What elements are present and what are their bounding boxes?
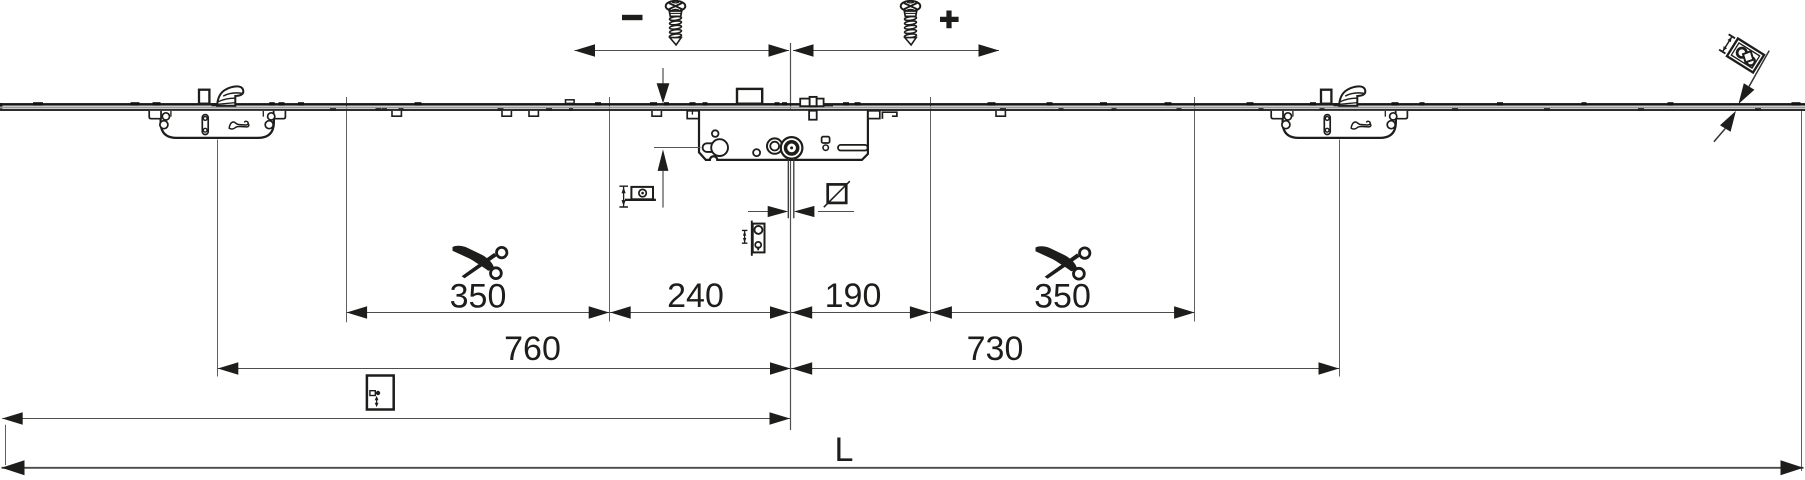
svg-text:L: L [835, 431, 854, 469]
svg-text:760: 760 [504, 330, 561, 368]
svg-text:350: 350 [1034, 278, 1091, 316]
svg-text:730: 730 [967, 330, 1024, 368]
svg-text:190: 190 [825, 277, 882, 315]
svg-text:350: 350 [450, 278, 507, 316]
svg-text:240: 240 [667, 277, 724, 315]
